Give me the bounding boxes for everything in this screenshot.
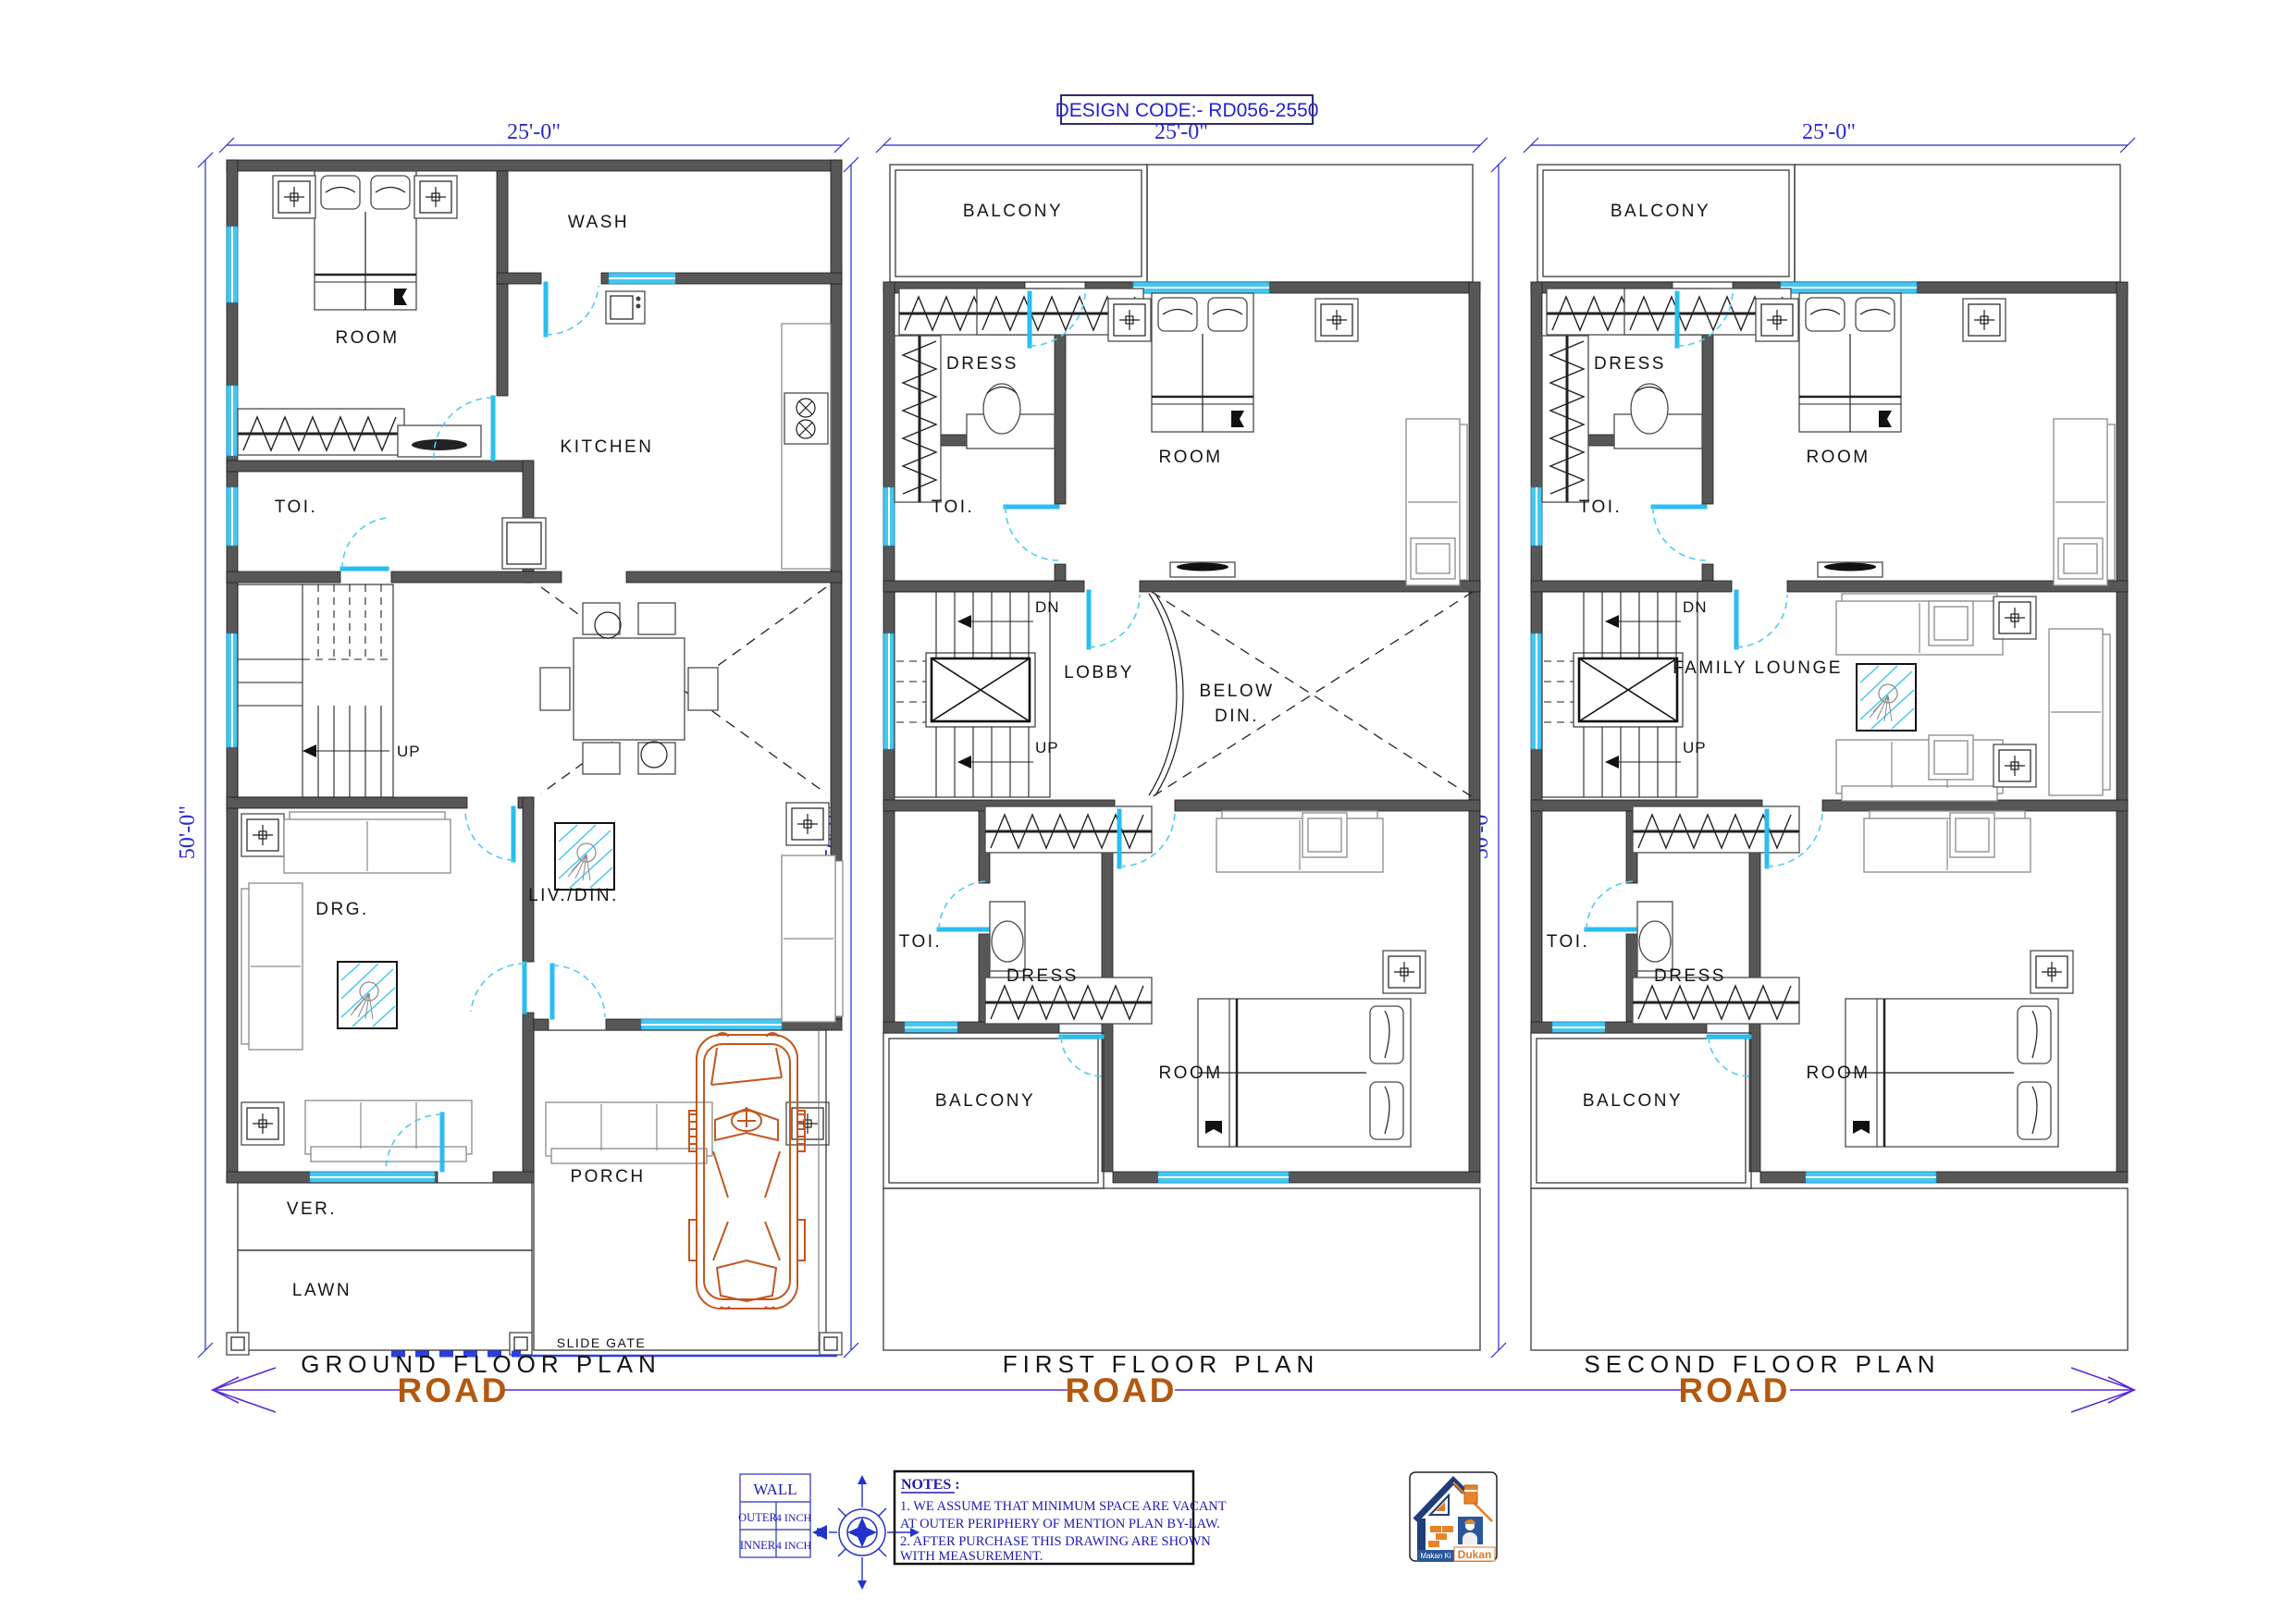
label-first-room-top: ROOM	[1158, 448, 1222, 467]
label-ground-kitchen: KITCHEN	[561, 437, 654, 457]
dim-height-ground: 50'-0"	[176, 805, 200, 859]
ground-floor-plan: ROOM WASH KITCHEN TOI. UP DRG. LIV./DIN.…	[227, 160, 843, 1378]
label-ground-lawn: LAWN	[292, 1281, 352, 1300]
dim-width-first: 25'-0"	[1154, 120, 1208, 144]
label-second-dress-bottom: DRESS	[1654, 966, 1726, 986]
notes-box: NOTES : 1. WE ASSUME THAT MINIMUM SPACE …	[895, 1471, 1227, 1564]
label-first-dn: DN	[1035, 598, 1060, 616]
notes-line-3: 2. AFTER PURCHASE THIS DRAWING ARE SHOWN	[900, 1534, 1211, 1549]
notes-line-1: 1. WE ASSUME THAT MINIMUM SPACE ARE VACA…	[900, 1499, 1227, 1514]
legend-outer-value: 4 INCH	[776, 1511, 812, 1524]
dim-width-second: 25'-0"	[1802, 120, 1856, 144]
legend-outer-label: OUTER	[738, 1511, 777, 1524]
label-ground-ver: VER.	[287, 1199, 337, 1219]
label-second-toi-top: TOI.	[1579, 498, 1623, 517]
design-code-text: DESIGN CODE:- RD056-2550	[1055, 100, 1319, 121]
legend-inner-value: 4 INCH	[776, 1539, 812, 1552]
wall-legend: WALL OUTER 4 INCH INNER 4 INCH	[738, 1474, 811, 1557]
legend-title: WALL	[753, 1481, 796, 1498]
label-second-dn: DN	[1683, 598, 1708, 616]
label-second-up: UP	[1683, 739, 1707, 756]
label-first-balcony-bottom: BALCONY	[935, 1091, 1035, 1111]
compass-north-label: N	[814, 1528, 830, 1538]
label-ground-wash: WASH	[568, 213, 629, 232]
label-first-lobby: LOBBY	[1064, 663, 1134, 682]
dim-width-ground: 25'-0"	[507, 120, 561, 144]
label-second-room-top: ROOM	[1806, 448, 1870, 467]
label-second-room-bottom: ROOM	[1806, 1064, 1870, 1083]
notes-line-4: WITH MEASUREMENT.	[900, 1549, 1043, 1564]
logo-brand-top: Makan Ki	[1420, 1552, 1451, 1560]
label-road-first: ROAD	[1066, 1371, 1178, 1409]
label-first-below: BELOW	[1199, 682, 1274, 701]
notes-line-2: AT OUTER PERIPHERY OF MENTION PLAN BY-LA…	[900, 1517, 1220, 1531]
label-second-balcony-bottom: BALCONY	[1583, 1091, 1683, 1111]
brand-logo: Makan Ki Dukan	[1410, 1472, 1497, 1561]
floor-plan-drawing: DESIGN CODE:- RD056-2550 25'-0" 25'-0" 2…	[0, 0, 2296, 1623]
second-floor-plan: BALCONY DRESS TOI. ROOM DN FAMILY LOUNGE…	[1531, 165, 2128, 1378]
label-second-balcony-top: BALCONY	[1611, 202, 1710, 221]
label-first-toi-bottom: TOI.	[899, 932, 943, 952]
label-first-din: DIN.	[1215, 707, 1259, 726]
label-road-second: ROAD	[1679, 1371, 1791, 1409]
label-ground-room: ROOM	[335, 328, 399, 348]
label-second-toi-bottom: TOI.	[1547, 932, 1590, 952]
floor-plan-sheet: DESIGN CODE:- RD056-2550 25'-0" 25'-0" 2…	[0, 0, 2296, 1623]
label-first-dress-top: DRESS	[946, 354, 1018, 374]
label-ground-drg: DRG.	[315, 900, 369, 919]
label-second-dress-top: DRESS	[1594, 354, 1666, 374]
label-ground-up: UP	[397, 743, 421, 760]
legend-inner-label: INNER	[740, 1539, 776, 1552]
notes-heading: NOTES :	[901, 1477, 960, 1493]
label-second-family-lounge: FAMILY LOUNGE	[1673, 658, 1843, 678]
label-first-up: UP	[1035, 739, 1059, 756]
label-road-ground: ROAD	[398, 1371, 510, 1409]
label-first-balcony-top: BALCONY	[963, 202, 1063, 221]
label-first-dress-bottom: DRESS	[1006, 966, 1079, 986]
label-ground-slide-gate: SLIDE GATE	[557, 1335, 646, 1350]
first-floor-plan: BALCONY DRESS TOI. ROOM DN LOBBY BELOW D…	[883, 165, 1480, 1378]
label-ground-porch: PORCH	[570, 1167, 645, 1187]
logo-brand-bottom: Dukan	[1458, 1548, 1492, 1561]
label-ground-livdin: LIV./DIN.	[528, 886, 619, 905]
label-first-toi-top: TOI.	[932, 498, 975, 517]
label-first-room-bottom: ROOM	[1158, 1064, 1222, 1083]
label-ground-toi: TOI.	[275, 498, 318, 517]
